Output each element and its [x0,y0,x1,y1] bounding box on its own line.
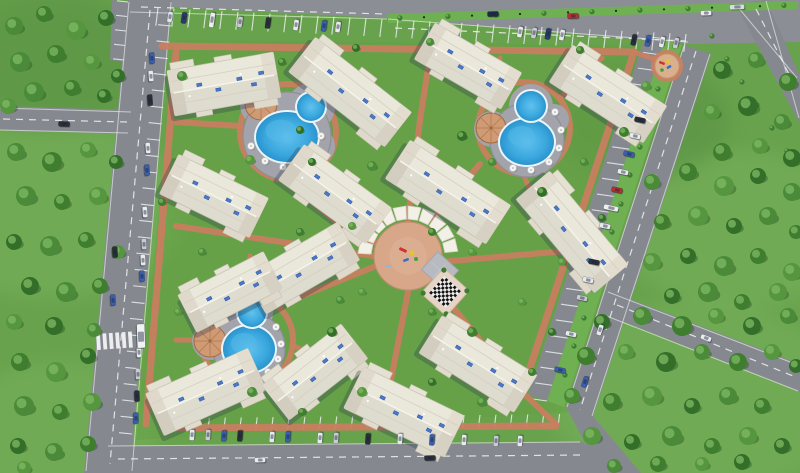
tree-canopy-highlight [599,215,603,219]
aerial-site-plan [0,0,800,473]
tree-canopy-highlight [656,216,664,224]
car [189,428,196,440]
street-lamp [663,8,665,10]
car [285,430,292,442]
tree-canopy-highlight [736,296,744,304]
tree-canopy-highlight [297,229,301,233]
tree-canopy-highlight [666,290,674,298]
tree-canopy-highlight [8,236,16,244]
median-bush [685,6,690,11]
car [567,13,579,19]
tree-canopy-highlight [427,39,431,43]
tree-canopy-highlight [635,309,644,318]
car-windshield [148,98,151,103]
median-bush [655,86,660,91]
playground-pad [655,54,679,78]
tree-canopy-highlight [309,159,313,163]
street-lamp [519,13,521,15]
tree-canopy-highlight [49,364,59,374]
tree-canopy-highlight [9,145,18,154]
site-plan-canvas [0,0,800,473]
car-windshield [258,458,263,461]
median-bush [769,125,774,130]
tree-canopy-highlight [761,209,770,218]
car-windshield [398,436,401,441]
car [144,142,151,154]
pool-water-highlight [508,126,535,147]
car-windshield [222,433,225,438]
tree-canopy-highlight [86,56,94,64]
tree-canopy-highlight [47,319,56,328]
tree-canopy-highlight [686,400,694,408]
car [493,434,500,446]
tree-canopy-highlight [620,128,625,133]
median-bush [581,315,586,320]
swimming-pool-small [516,91,546,121]
bush-highlight [542,11,544,13]
tree-canopy-highlight [13,355,22,364]
umbrella-pole [250,145,252,147]
car-windshield [134,416,137,421]
tree-canopy-highlight [696,346,704,354]
car-windshield [704,11,709,14]
bush-highlight [740,80,742,82]
tree-canopy-highlight [113,71,120,78]
tree-canopy-highlight [519,299,523,303]
tree-canopy-highlight [353,45,357,49]
median-bush [781,3,786,8]
tree-canopy-highlight [299,409,303,413]
tree-canopy-highlight [43,238,53,248]
car-windshield [146,146,149,151]
tree-canopy-highlight [17,398,27,408]
street-lamp [567,11,569,13]
roof-vent [197,83,202,87]
umbrella-pole [277,358,279,360]
street-lamp [759,5,761,7]
gazebo-finial [489,126,492,129]
tree-canopy-highlight [646,176,654,184]
tree-canopy-highlight [349,223,353,227]
tree-canopy-highlight [45,154,55,164]
tree-canopy-highlight [665,428,675,438]
tree-canopy-highlight [706,440,714,448]
play-equipment [410,251,415,256]
tree-canopy-highlight [358,388,363,393]
car-windshield [334,435,337,440]
car-windshield [136,372,139,377]
tree-canopy-highlight [23,279,32,288]
car-windshield [145,168,148,173]
tree-canopy-highlight [19,188,29,198]
tree-canopy-highlight [785,185,794,194]
tree-canopy-highlight [754,140,762,148]
tree-canopy-highlight [741,429,750,438]
bush-highlight [782,3,784,5]
umbrella-pole [560,129,562,131]
car-windshield [138,332,144,342]
plaza-inner-circle [389,237,426,274]
car [424,455,436,461]
car [111,246,118,258]
bush-highlight [572,344,574,346]
tree-canopy-highlight [710,310,718,318]
median-bush [709,33,714,38]
tree-canopy-highlight [776,440,784,448]
tree-canopy-highlight [27,84,37,94]
tree-canopy-highlight [642,82,647,87]
tree-canopy-highlight [756,400,764,408]
bush-highlight [590,10,592,12]
tree-canopy-highlight [82,438,90,446]
bottom-road [108,442,622,473]
roof-vent [216,88,221,92]
car [237,429,244,441]
tree-canopy-highlight [59,284,69,294]
umbrella-pole [554,111,556,113]
tree-canopy-highlight [675,318,685,328]
tree-canopy-highlight [581,159,585,163]
tree-canopy-highlight [368,162,373,167]
roof-vent [251,82,256,86]
car-windshield [206,432,209,437]
umbrella-pole [530,169,532,171]
bush-highlight [686,7,688,9]
tree-canopy-highlight [429,229,433,233]
tree-canopy-highlight [697,459,704,466]
tree-canopy-highlight [159,199,163,203]
walking-path [176,122,240,126]
street-lamp [471,15,473,17]
umbrella-pole [320,135,322,137]
car [138,270,145,282]
tree-canopy-highlight [69,22,79,32]
tree-canopy-highlight [529,369,533,373]
tree-canopy-highlight [717,178,727,188]
car [141,206,148,218]
street-lamp [711,7,713,9]
tree-canopy-highlight [731,355,740,364]
tree-canopy-highlight [585,429,594,438]
tree-canopy-highlight [99,91,106,98]
tree-canopy-highlight [538,188,543,193]
car-windshield [141,258,144,263]
tree-canopy-highlight [701,284,711,294]
tree-canopy-highlight [94,280,102,288]
tree-canopy-highlight [609,461,616,468]
car-windshield [140,274,143,279]
tree-canopy-highlight [199,249,203,253]
bush-highlight [619,202,621,204]
tree-canopy-highlight [85,395,94,404]
tree-canopy-highlight [429,309,433,313]
car-windshield [462,437,465,442]
car-windshield [428,456,433,459]
umbrella-pole [512,167,514,169]
tree-canopy-highlight [468,328,473,333]
tree-canopy-highlight [66,82,74,90]
roof-vent [258,71,263,75]
bush-highlight [725,57,727,59]
tree-canopy-highlight [652,458,660,466]
tree-canopy-highlight [791,361,798,368]
median-bush [618,201,623,206]
car [221,429,228,441]
car [254,457,266,463]
umbrella-pole [280,343,282,345]
bush-highlight [610,230,612,232]
car-windshield [135,394,138,399]
car [132,412,138,424]
tree-canopy-highlight [728,220,736,228]
car [134,368,140,380]
tree-canopy-highlight [659,354,669,364]
tree-canopy-highlight [89,325,96,332]
tree-canopy-highlight [745,319,754,328]
tree-canopy-highlight [13,54,23,64]
tree-canopy-highlight [681,165,690,174]
car-windshield [571,14,576,17]
tree-canopy-highlight [47,445,56,454]
corner-playground [655,54,679,78]
car-windshield [111,298,114,303]
bush-highlight [656,87,658,89]
car [148,52,155,64]
tree-canopy-highlight [8,316,16,324]
tree-canopy-highlight [741,98,751,108]
car [140,238,147,250]
car [317,431,324,443]
tree-canopy-highlight [248,388,253,393]
car-windshield [62,122,67,125]
tree-canopy-highlight [605,395,614,404]
play-equipment [414,257,418,261]
tree-canopy-highlight [706,106,714,114]
tree-canopy-highlight [559,259,563,263]
car [429,433,436,445]
tree-canopy-highlight [91,189,100,198]
car [109,294,116,306]
tree-canopy-highlight [782,310,790,318]
car [269,430,276,442]
tree-canopy-highlight [781,75,790,84]
car-windshield [149,74,152,79]
tree-canopy-highlight [82,144,90,152]
tree-canopy-highlight [54,406,62,414]
play-equipment [666,59,670,63]
tree-canopy-highlight [297,127,301,131]
tree-canopy-highlight [49,47,58,56]
tree-canopy-highlight [645,255,654,264]
car-windshield [366,436,369,441]
car [700,10,712,16]
tree-canopy-highlight [429,379,433,383]
median-bush [637,144,642,149]
tree-canopy-highlight [785,265,794,274]
street-lamp [423,16,425,18]
tree-canopy-highlight [579,349,588,358]
median-bush [724,56,729,61]
tree-canopy-highlight [279,59,283,63]
tree-canopy-highlight [566,390,574,398]
car [461,433,468,445]
tree-canopy-highlight [328,328,333,333]
bush-highlight [710,34,712,36]
car [143,164,150,176]
tree-canopy-highlight [771,285,780,294]
car-windshield [142,242,145,247]
tree-canopy-highlight [178,72,183,77]
car [136,324,146,349]
street-lamp [615,10,617,12]
play-equipment [660,68,664,72]
car-windshield [318,435,321,440]
car-windshield [286,434,289,439]
tree-canopy-highlight [715,145,724,154]
pool-water-highlight [265,120,296,143]
play-equipment [385,265,391,267]
car-windshield [494,438,497,443]
car [333,431,340,443]
median-bush [589,9,594,14]
walking-path [164,426,556,428]
car-windshield [430,437,433,442]
tree-canopy-highlight [56,196,64,204]
tree-canopy-highlight [469,249,473,253]
car-windshield [137,350,140,355]
tree-canopy-highlight [489,159,493,163]
car [397,432,404,444]
tree-canopy-highlight [682,250,690,258]
tree-canopy-highlight [82,350,90,358]
median-bush [445,14,450,19]
tree-canopy-highlight [715,63,724,72]
tree-canopy-highlight [626,436,634,444]
tree-canopy-highlight [458,132,463,137]
car [139,254,146,266]
car-windshield [491,12,496,15]
car [133,390,139,402]
car-windshield [190,432,193,437]
car [146,94,153,106]
car-windshield [270,434,273,439]
tree-canopy-highlight [766,346,774,354]
tree-canopy-highlight [620,346,628,354]
median-bush [397,15,402,20]
car-windshield [113,250,116,255]
gazebo-finial [208,339,211,342]
bush-highlight [638,145,640,147]
tree-canopy-highlight [38,8,46,16]
tree-canopy-highlight [549,329,553,333]
tree-canopy-highlight [785,151,794,160]
tree-canopy-highlight [577,47,581,51]
tree-canopy-highlight [2,100,10,108]
median-bush [571,343,576,348]
car-windshield [238,433,241,438]
bush-highlight [582,316,584,318]
roof-vent [237,77,242,81]
tree-canopy-highlight [596,316,604,324]
tree-canopy-highlight [776,116,784,124]
bush-highlight [770,126,772,128]
tree-canopy-highlight [100,12,108,20]
tree-canopy-highlight [246,156,251,161]
bush-highlight [446,14,448,16]
tree-canopy-highlight [111,157,118,164]
tree-canopy-highlight [12,440,20,448]
tree-canopy-highlight [80,234,88,242]
car [58,121,70,127]
car [205,428,212,440]
tree-canopy-highlight [478,398,483,403]
median-bush [739,79,744,84]
tree-canopy-highlight [645,388,655,398]
median-bush [541,11,546,16]
median-bush [637,8,642,13]
car [729,4,745,11]
tree-canopy-highlight [337,297,341,301]
tree-canopy-highlight [19,463,26,470]
bush-highlight [398,16,400,18]
tree-canopy-highlight [750,54,758,62]
umbrella-pole [558,147,560,149]
car [517,434,524,446]
tree-canopy-highlight [752,250,760,258]
bush-highlight [638,8,640,10]
umbrella-pole [264,160,266,162]
tree-canopy-highlight [736,456,744,464]
tree-canopy-highlight [7,19,16,28]
tree-canopy-highlight [359,289,363,293]
car-windshield [143,210,146,215]
umbrella-pole [548,161,550,163]
car [147,70,154,82]
car [487,11,499,17]
tree-canopy-highlight [691,208,701,218]
tree-canopy-highlight [717,258,727,268]
tree-canopy-highlight [752,170,760,178]
tree-canopy-highlight [721,389,730,398]
car-windshield [734,5,740,8]
tree-canopy-highlight [175,309,179,313]
tree-canopy-highlight [791,227,798,234]
car-windshield [150,56,153,61]
umbrella-pole [275,326,277,328]
car [365,432,372,444]
car-windshield [518,438,521,443]
